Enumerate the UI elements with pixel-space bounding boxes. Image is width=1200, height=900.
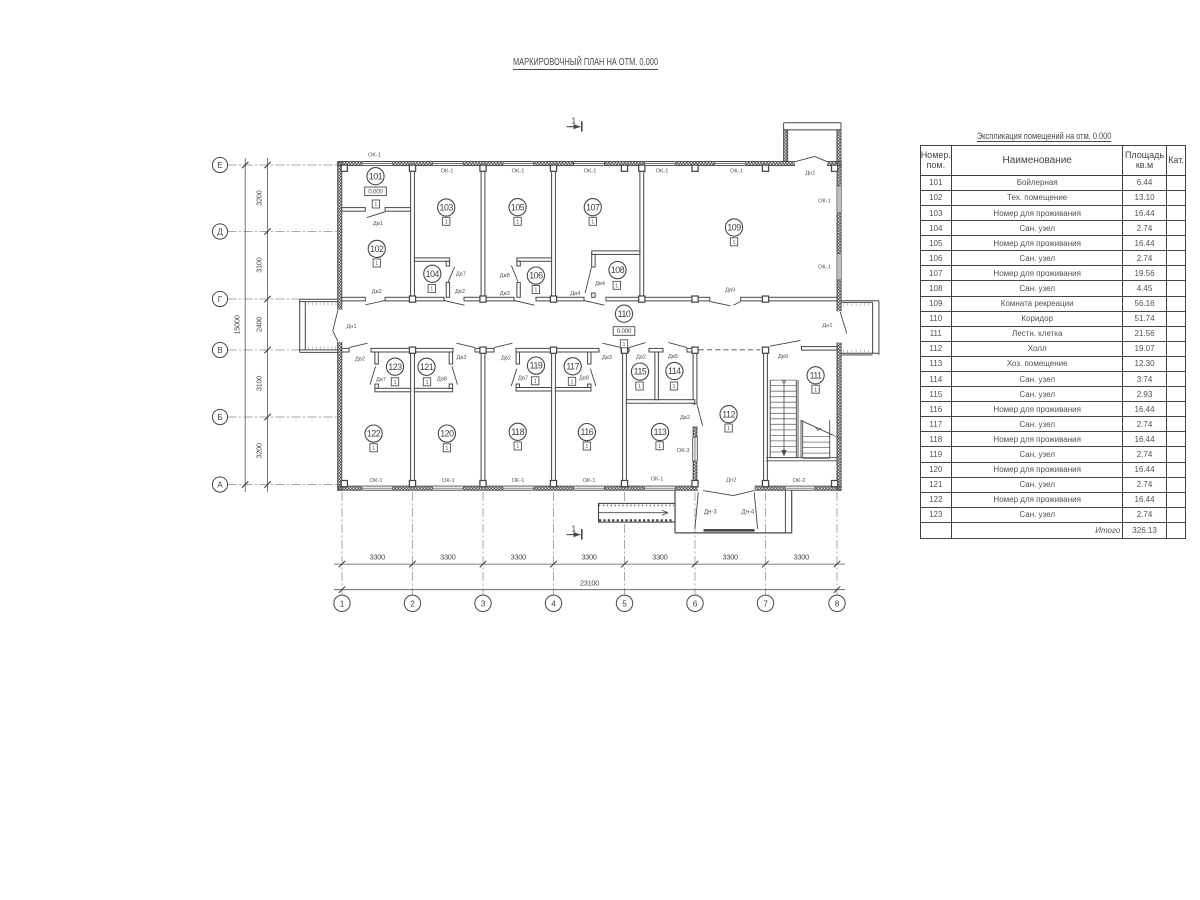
svg-text:123: 123 — [388, 362, 402, 372]
svg-text:Дв9: Дв9 — [725, 288, 735, 294]
svg-text:1: 1 — [638, 384, 641, 390]
svg-text:2: 2 — [410, 599, 415, 608]
svg-text:1: 1 — [673, 384, 676, 390]
svg-text:3: 3 — [481, 599, 486, 608]
svg-text:Дн-3: Дн-3 — [704, 510, 717, 516]
svg-text:Дв2: Дв2 — [501, 356, 511, 362]
svg-text:1: 1 — [375, 261, 378, 267]
svg-text:ОК-1: ОК-1 — [370, 478, 383, 484]
svg-text:ОК-1: ОК-1 — [584, 168, 597, 174]
svg-text:1: 1 — [426, 380, 429, 386]
svg-text:1: 1 — [374, 202, 377, 208]
svg-text:МАРКИРОВОЧНЫЙ ПЛАН НА ОТМ. 0.0: МАРКИРОВОЧНЫЙ ПЛАН НА ОТМ. 0.000 — [513, 55, 658, 68]
svg-text:116: 116 — [581, 427, 594, 437]
svg-text:1: 1 — [727, 426, 730, 432]
svg-text:110: 110 — [618, 309, 631, 319]
svg-text:ОК-1: ОК-1 — [656, 168, 669, 174]
svg-text:6: 6 — [693, 599, 698, 608]
svg-text:1: 1 — [571, 116, 576, 126]
svg-text:1: 1 — [372, 446, 375, 452]
svg-text:3100: 3100 — [255, 376, 264, 391]
svg-text:Дв8: Дв8 — [437, 376, 447, 382]
svg-text:1: 1 — [516, 444, 519, 450]
svg-text:ОК-1: ОК-1 — [730, 168, 743, 174]
svg-text:3200: 3200 — [255, 443, 264, 458]
svg-text:1: 1 — [814, 387, 817, 393]
svg-text:108: 108 — [611, 265, 625, 275]
svg-text:ОК-1: ОК-1 — [512, 168, 525, 174]
svg-text:Дв7: Дв7 — [376, 377, 386, 383]
svg-text:ОК-1: ОК-1 — [441, 168, 454, 174]
svg-text:Дв2: Дв2 — [355, 356, 365, 362]
svg-text:0.000: 0.000 — [368, 189, 383, 196]
svg-text:В: В — [217, 346, 223, 355]
svg-text:0.000: 0.000 — [617, 328, 632, 335]
svg-text:Дв7: Дв7 — [518, 376, 528, 382]
svg-text:101: 101 — [369, 171, 383, 181]
svg-text:109: 109 — [727, 223, 741, 233]
svg-text:Дв8: Дв8 — [579, 376, 589, 382]
svg-text:Е: Е — [217, 161, 223, 170]
svg-text:1: 1 — [445, 446, 448, 452]
svg-text:Дв2: Дв2 — [372, 289, 382, 295]
svg-text:ОК-1: ОК-1 — [818, 265, 831, 271]
svg-text:7: 7 — [763, 599, 768, 608]
svg-text:Дв4: Дв4 — [570, 291, 580, 297]
svg-text:113: 113 — [654, 427, 667, 437]
svg-text:3300: 3300 — [370, 553, 385, 562]
svg-text:ОК-1: ОК-1 — [583, 478, 596, 484]
svg-text:111: 111 — [810, 370, 823, 380]
svg-text:Дн1: Дн1 — [822, 323, 832, 329]
svg-text:2400: 2400 — [255, 317, 264, 332]
svg-text:Г: Г — [218, 295, 223, 304]
svg-text:1: 1 — [571, 524, 576, 534]
svg-text:120: 120 — [440, 429, 454, 439]
svg-text:1: 1 — [430, 287, 433, 293]
svg-text:1: 1 — [615, 284, 618, 290]
svg-text:Дв3: Дв3 — [456, 355, 466, 361]
svg-text:3300: 3300 — [511, 553, 526, 562]
svg-text:Дв1: Дв1 — [373, 221, 383, 227]
svg-text:ОК-3: ОК-3 — [677, 448, 690, 454]
svg-text:1: 1 — [534, 288, 537, 294]
svg-text:Дн2: Дн2 — [726, 477, 736, 483]
svg-text:8: 8 — [835, 599, 840, 608]
svg-text:121: 121 — [420, 362, 434, 372]
svg-text:Дв3: Дв3 — [500, 291, 510, 297]
svg-text:112: 112 — [722, 409, 735, 419]
svg-text:Дв5: Дв5 — [668, 354, 678, 360]
svg-text:3300: 3300 — [652, 553, 667, 562]
svg-text:3100: 3100 — [255, 257, 264, 272]
svg-text:Дв4: Дв4 — [595, 281, 605, 287]
svg-text:3300: 3300 — [723, 553, 738, 562]
svg-text:Дн1: Дн1 — [805, 170, 815, 176]
svg-text:102: 102 — [370, 244, 384, 254]
svg-text:3300: 3300 — [440, 553, 455, 562]
svg-text:ОК-1: ОК-1 — [818, 198, 831, 204]
svg-text:ОК-1: ОК-1 — [512, 478, 525, 484]
svg-text:1: 1 — [571, 380, 574, 386]
svg-text:Дн-4: Дн-4 — [742, 510, 755, 516]
svg-text:122: 122 — [367, 429, 381, 439]
svg-text:1: 1 — [445, 220, 448, 226]
svg-text:ОК-1: ОК-1 — [651, 477, 664, 483]
svg-text:107: 107 — [586, 202, 600, 212]
svg-text:Дв8: Дв8 — [500, 273, 510, 279]
svg-text:103: 103 — [440, 203, 454, 213]
svg-text:Дв2: Дв2 — [636, 354, 646, 360]
svg-text:ОК-2: ОК-2 — [793, 478, 806, 484]
svg-text:1: 1 — [591, 220, 594, 226]
svg-text:Дв2: Дв2 — [455, 289, 465, 295]
svg-text:Б: Б — [217, 413, 222, 422]
svg-text:118: 118 — [511, 427, 524, 437]
svg-text:1: 1 — [623, 342, 626, 348]
svg-text:3300: 3300 — [581, 553, 596, 562]
svg-text:1: 1 — [340, 599, 345, 608]
svg-text:1: 1 — [516, 220, 519, 226]
svg-text:Дв2: Дв2 — [680, 415, 690, 421]
svg-text:106: 106 — [529, 271, 543, 281]
svg-text:1: 1 — [534, 379, 537, 385]
svg-text:15000: 15000 — [233, 315, 242, 334]
svg-text:1: 1 — [585, 444, 588, 450]
svg-text:Дв7: Дв7 — [456, 272, 466, 278]
svg-text:ОК-1: ОК-1 — [368, 153, 381, 159]
svg-text:104: 104 — [426, 269, 440, 279]
svg-text:3200: 3200 — [255, 190, 264, 205]
svg-text:5: 5 — [622, 599, 627, 608]
svg-text:114: 114 — [668, 366, 681, 376]
svg-text:4: 4 — [551, 599, 556, 608]
svg-text:Д: Д — [217, 227, 223, 236]
svg-text:Дн1: Дн1 — [346, 324, 356, 330]
svg-text:1: 1 — [733, 240, 736, 246]
svg-text:Дв3: Дв3 — [602, 355, 612, 361]
svg-text:115: 115 — [634, 367, 647, 377]
svg-text:А: А — [217, 480, 223, 489]
svg-text:105: 105 — [511, 202, 525, 212]
svg-text:ОК-1: ОК-1 — [442, 478, 455, 484]
svg-text:Дв9: Дв9 — [778, 354, 788, 360]
svg-text:23100: 23100 — [580, 579, 599, 588]
svg-text:117: 117 — [566, 361, 579, 371]
svg-text:1: 1 — [394, 380, 397, 386]
svg-text:3300: 3300 — [794, 553, 809, 562]
svg-text:1: 1 — [658, 444, 661, 450]
svg-text:119: 119 — [530, 361, 543, 371]
